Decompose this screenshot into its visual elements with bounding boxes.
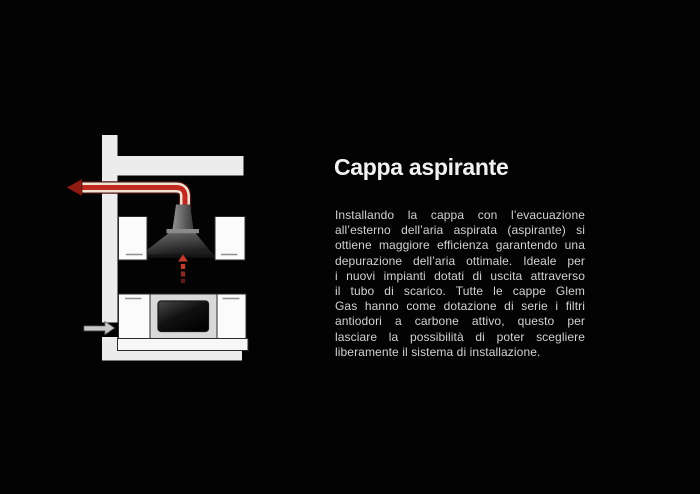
floor-strip <box>102 351 242 361</box>
paragraph-line: il tubo di scarico. Tutte le cappe Glem <box>335 284 585 299</box>
hood-chimney <box>173 205 194 230</box>
paragraph-line: liberamente il sistema di installazione. <box>335 345 585 360</box>
paragraph-line: all’esterno dell’aria aspirata (aspirant… <box>335 223 585 238</box>
hood-canopy <box>141 231 214 256</box>
plinth <box>118 339 249 351</box>
description-paragraph: Installando la cappa con l’evacuazione a… <box>335 208 585 360</box>
ceiling-beam <box>115 156 244 176</box>
exhaust-duct <box>67 179 186 210</box>
intake-arrow-icon <box>84 322 115 335</box>
wall-cabinet-left <box>119 217 148 261</box>
page-title: Cappa aspirante <box>334 154 634 181</box>
paragraph-line: lasciare la possibilità di poter sceglie… <box>335 330 585 345</box>
hood-junction-band <box>167 229 200 233</box>
paragraph-line: antiodori a carbone attivo, questo per <box>335 314 585 329</box>
suction-arrow-icon <box>178 255 188 284</box>
paragraph-line: Gas hanno come dotazione di serie i filt… <box>335 299 585 314</box>
wall-column-upper <box>102 135 118 323</box>
wall-cabinet-right <box>215 217 245 261</box>
hood-bottom-rim <box>139 255 216 258</box>
paragraph-line: Installando la cappa con l’evacuazione <box>335 208 585 223</box>
slide: Cappa aspirante Installando la cappa con… <box>0 0 700 494</box>
paragraph-line: depurazione dell’aria ottimale. Ideale p… <box>335 254 585 269</box>
duct-arrowhead-icon <box>67 179 83 196</box>
base-unit <box>118 294 249 351</box>
paragraph-line: ottiene maggiore efficienza garantendo u… <box>335 238 585 253</box>
cooker-hood <box>139 205 216 258</box>
oven-window <box>158 301 209 332</box>
paragraph-line: i nuovi impianti dotati di uscita attrav… <box>335 269 585 284</box>
